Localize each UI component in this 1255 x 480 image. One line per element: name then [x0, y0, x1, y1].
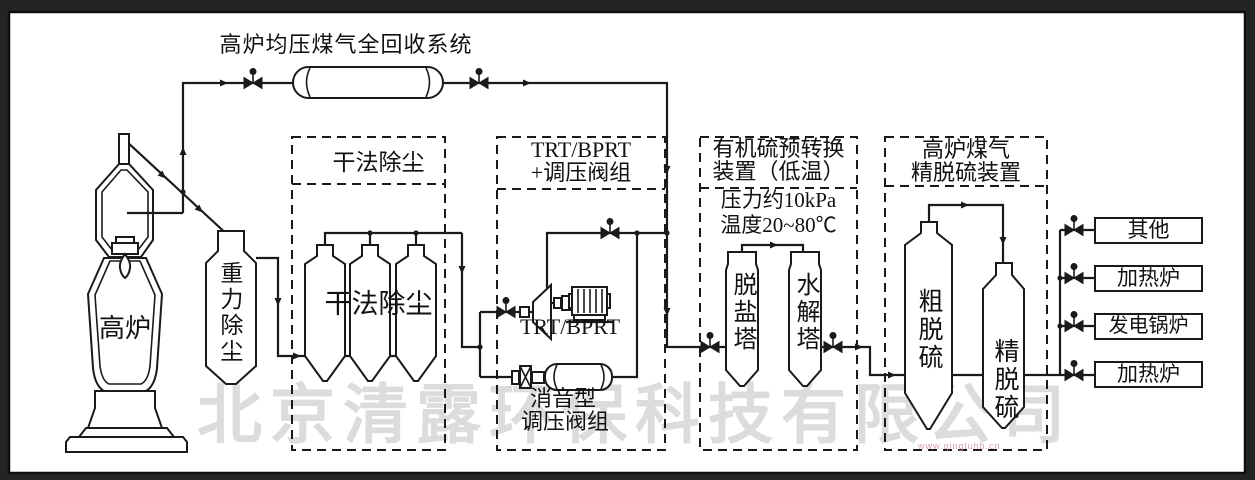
diagram-canvas: 北京清露环保科技有限公司 [0, 0, 1255, 480]
fine-box-title-1: 高炉煤气 [885, 139, 1047, 162]
trt-box-title-2: +调压阀组 [497, 162, 665, 185]
dry-dust-inner-label: 干法除尘 [300, 290, 457, 318]
silencer-label-1: 消音型 [498, 388, 628, 411]
fine-desulfur-label: 精脱硫 [991, 338, 1017, 422]
dry-dust-box-title: 干法除尘 [300, 151, 457, 175]
watermark-url: www.qingluhb.cn [918, 442, 1001, 451]
output-label-heating-furnace-2: 加热炉 [1095, 364, 1202, 386]
hydrolysis-tower-label: 水解塔 [792, 272, 817, 353]
turbine-label: TRT/BPRT [495, 316, 645, 339]
gravity-collector-label: 重力除尘 [217, 261, 241, 365]
organic-box-title-2: 装置（低温） [700, 161, 857, 184]
blast-furnace-label: 高炉 [95, 315, 155, 342]
coarse-desulfur-label: 粗脱硫 [915, 288, 941, 372]
desalting-tower-label: 脱盐塔 [729, 272, 754, 353]
output-label-power-boiler: 发电锅炉 [1095, 316, 1202, 337]
silencer-label-2: 调压阀组 [495, 411, 635, 434]
organic-box-title-1: 有机硫预转换 [700, 138, 857, 161]
output-label-heating-furnace-1: 加热炉 [1095, 268, 1202, 290]
output-label-other: 其他 [1095, 220, 1202, 242]
organic-pressure: 压力约10kPa [700, 190, 857, 212]
organic-temperature: 温度20~80℃ [700, 215, 857, 237]
fine-box-title-2: 精脱硫装置 [885, 162, 1047, 185]
page-title: 高炉均压煤气全回收系统 [216, 34, 476, 57]
accumulator-capsule [293, 67, 443, 98]
trt-box-title-1: TRT/BPRT [497, 139, 665, 162]
